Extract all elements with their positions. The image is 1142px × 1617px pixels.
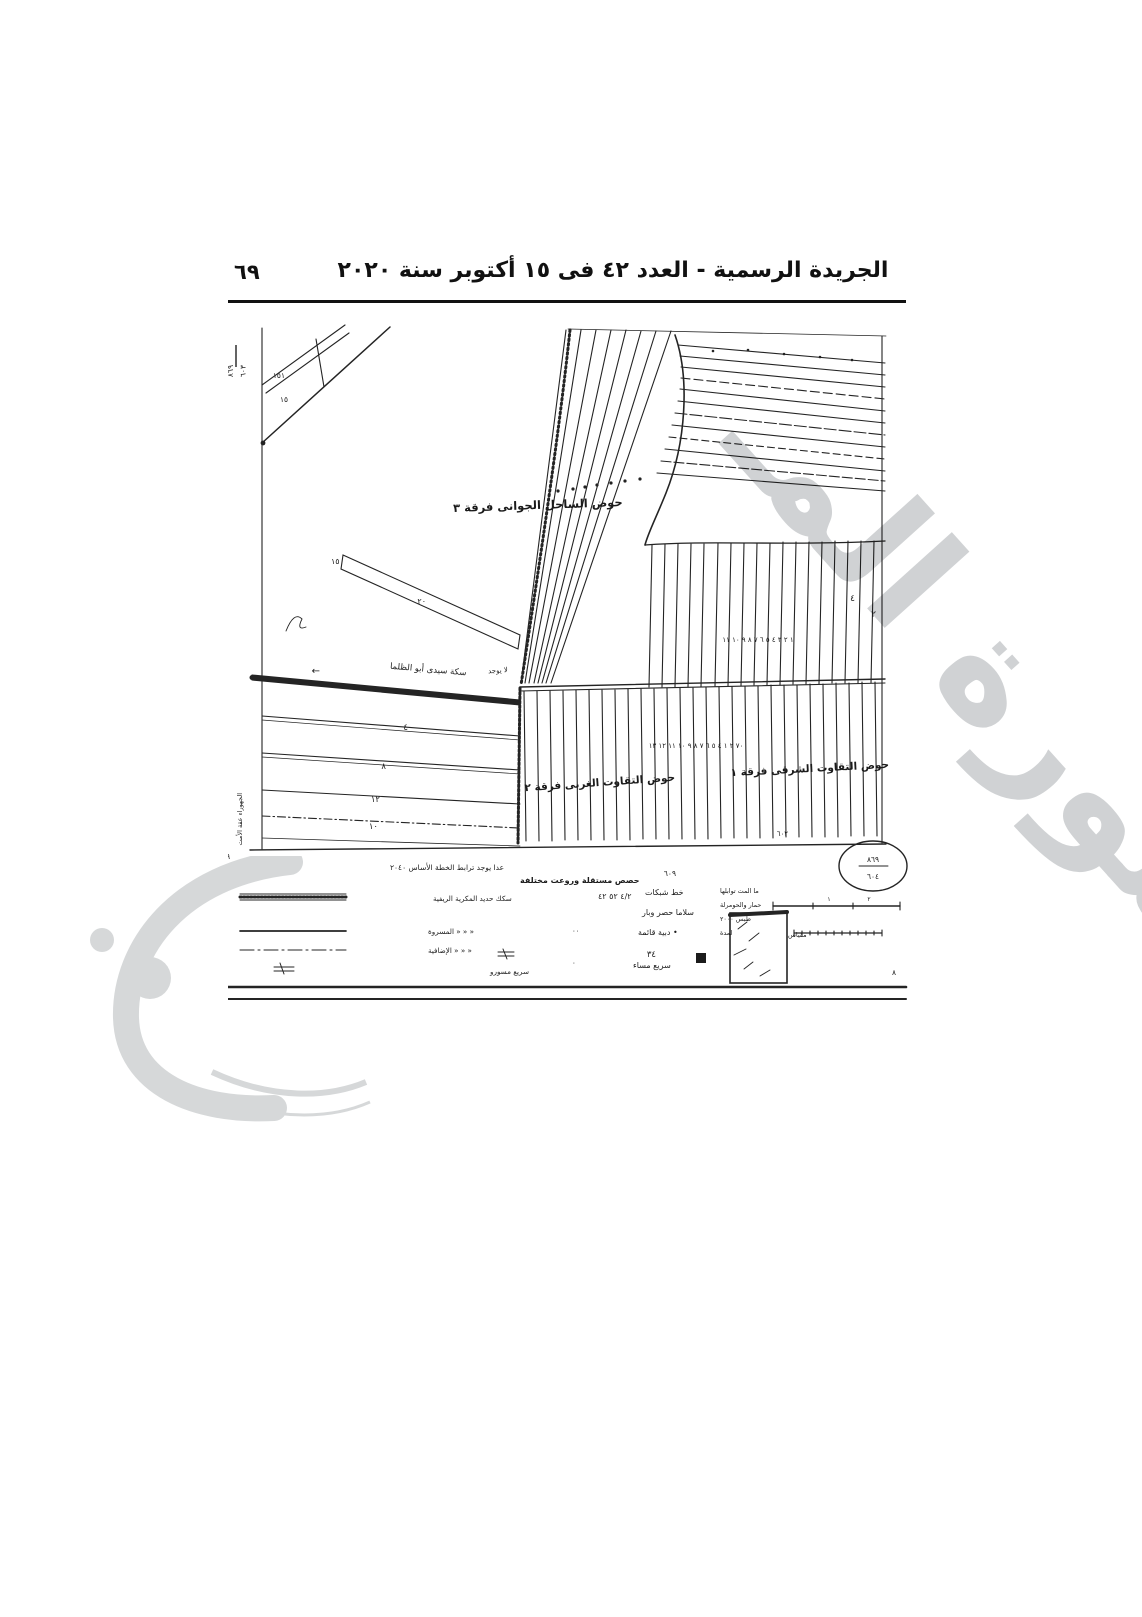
number-609: ٦٠٩ <box>664 869 676 878</box>
parcel-number-15: ١٥ <box>280 395 288 404</box>
legend-right-line2: حمار والحومرلة <box>720 901 761 909</box>
logo-swoosh-1 <box>212 1072 366 1094</box>
hatched-boundary-vertical <box>518 688 520 843</box>
legend-number-8: ٨ <box>892 968 896 977</box>
legend-note: عدا يوجد ترابط الخطة الأساس ٢٠٤٠ <box>390 862 504 872</box>
legend-right-line1: ما المت توابلها <box>720 887 759 895</box>
gazette-title: الجريدة الرسمية - العدد ٤٢ فى ١٥ أكتوبر … <box>318 258 908 283</box>
curved-boundary <box>645 335 684 545</box>
page-header: ٦٩ الجريدة الرسمية - العدد ٤٢ فى ١٥ أكتو… <box>228 256 908 292</box>
bottom-parcel-numbers: ٧٠ ٢ ١ ٤ ٥ ٦ ٧ ٨ ٩ ١٠ ١١ ١٢ ١٣ <box>649 742 744 750</box>
scale-tick-2: ٢ <box>867 896 870 903</box>
narrow-strip-parcel <box>341 555 520 649</box>
scale-tick-1: ١ <box>827 896 830 903</box>
legend-row1-label: سكك حديد المكرية الريفية <box>433 894 512 903</box>
legend-black-square <box>696 953 706 963</box>
legend-right-line3: طبس ٢٠٠٠ <box>720 915 751 923</box>
logo-dot-small <box>90 928 114 952</box>
legend-subnote: حصص مستقلة وروعت مختلفة <box>520 876 640 886</box>
strip-mid-number: ٢٠ <box>417 597 426 606</box>
band-number-2: ٨ <box>381 762 386 772</box>
watermark-logo <box>62 856 382 1146</box>
parcel-number-151: ١٥١ <box>273 371 285 380</box>
legend-row2-extra: ٠٠ <box>572 927 580 935</box>
legend-inset-box <box>730 913 787 983</box>
left-edge-vertical-label: الجهوراء عقة الأمت <box>235 793 244 846</box>
legend-row1-extra: ٤/٢ ٥٢ ٤٢ <box>598 892 632 901</box>
legend-mid-row1: خط شبكات <box>645 888 684 897</box>
number-602: ٦٠٢ <box>777 830 789 838</box>
map-border-top <box>568 329 886 336</box>
page-number: ٦٩ <box>234 260 260 284</box>
basin-label-north: حوض الساحل الجوانى فرقة ٣ <box>453 495 623 516</box>
scale-label: مقياس <box>788 931 807 939</box>
logo-dot-large <box>129 957 171 999</box>
fraction-bottom: ٦٠٣ <box>239 365 248 377</box>
oval-fraction-top: ٨٦٩ <box>867 855 879 864</box>
gazette-page: { "page": { "number": "٦٩", "header": "ا… <box>0 0 1142 1617</box>
map-border-bottom <box>250 844 886 850</box>
oval-fraction-bottom: ٦٠٤ <box>867 872 879 881</box>
legend-mid-number: ٣٤ <box>647 950 656 960</box>
basin-label-east: حوض التقاوت الشرقى فرقة ١ <box>730 759 889 779</box>
legend-row3-extra: ٠ <box>572 959 576 967</box>
band-number-4: ١٠ <box>369 822 378 832</box>
strip-left-number: ١٥ <box>331 557 340 566</box>
legend-row3-label: « « « الإضافية <box>428 946 472 955</box>
legend-right-line4: لمدة <box>720 929 732 937</box>
legend-mid-row2: سلاما حصر وبار <box>641 908 694 917</box>
legend-mid-row3: • دبية قائمة <box>638 928 678 937</box>
legend-mid-row4: سريع مساء <box>633 961 671 970</box>
legend-row4-label: سريع مسورو <box>489 967 529 976</box>
header-rule <box>228 300 906 303</box>
band-number-3: ١٢ <box>371 795 381 805</box>
sheet-fraction-topleft: ٨٦٩ ٦٠٣ <box>228 345 248 377</box>
legend-row2-label: « « « المسروة <box>428 927 474 936</box>
band-number-1: ٤ <box>403 723 408 733</box>
railway-label: سكة سيدى أبو الظلما <box>390 660 467 679</box>
no-exist-label: لا يوجد <box>488 666 508 675</box>
fraction-top: ٨٦٩ <box>228 365 235 377</box>
basin-label-west: حوض التقاوت الغربى فرقة ٢ <box>524 772 675 795</box>
mid-parcel-numbers: ١ ٢ ٣ ٤ ٥ ٦ ٧ ٨ ٩ ١٠ ١١ <box>722 636 793 644</box>
railway-band <box>252 678 520 703</box>
railway-arrow-icon: ← <box>312 666 320 677</box>
